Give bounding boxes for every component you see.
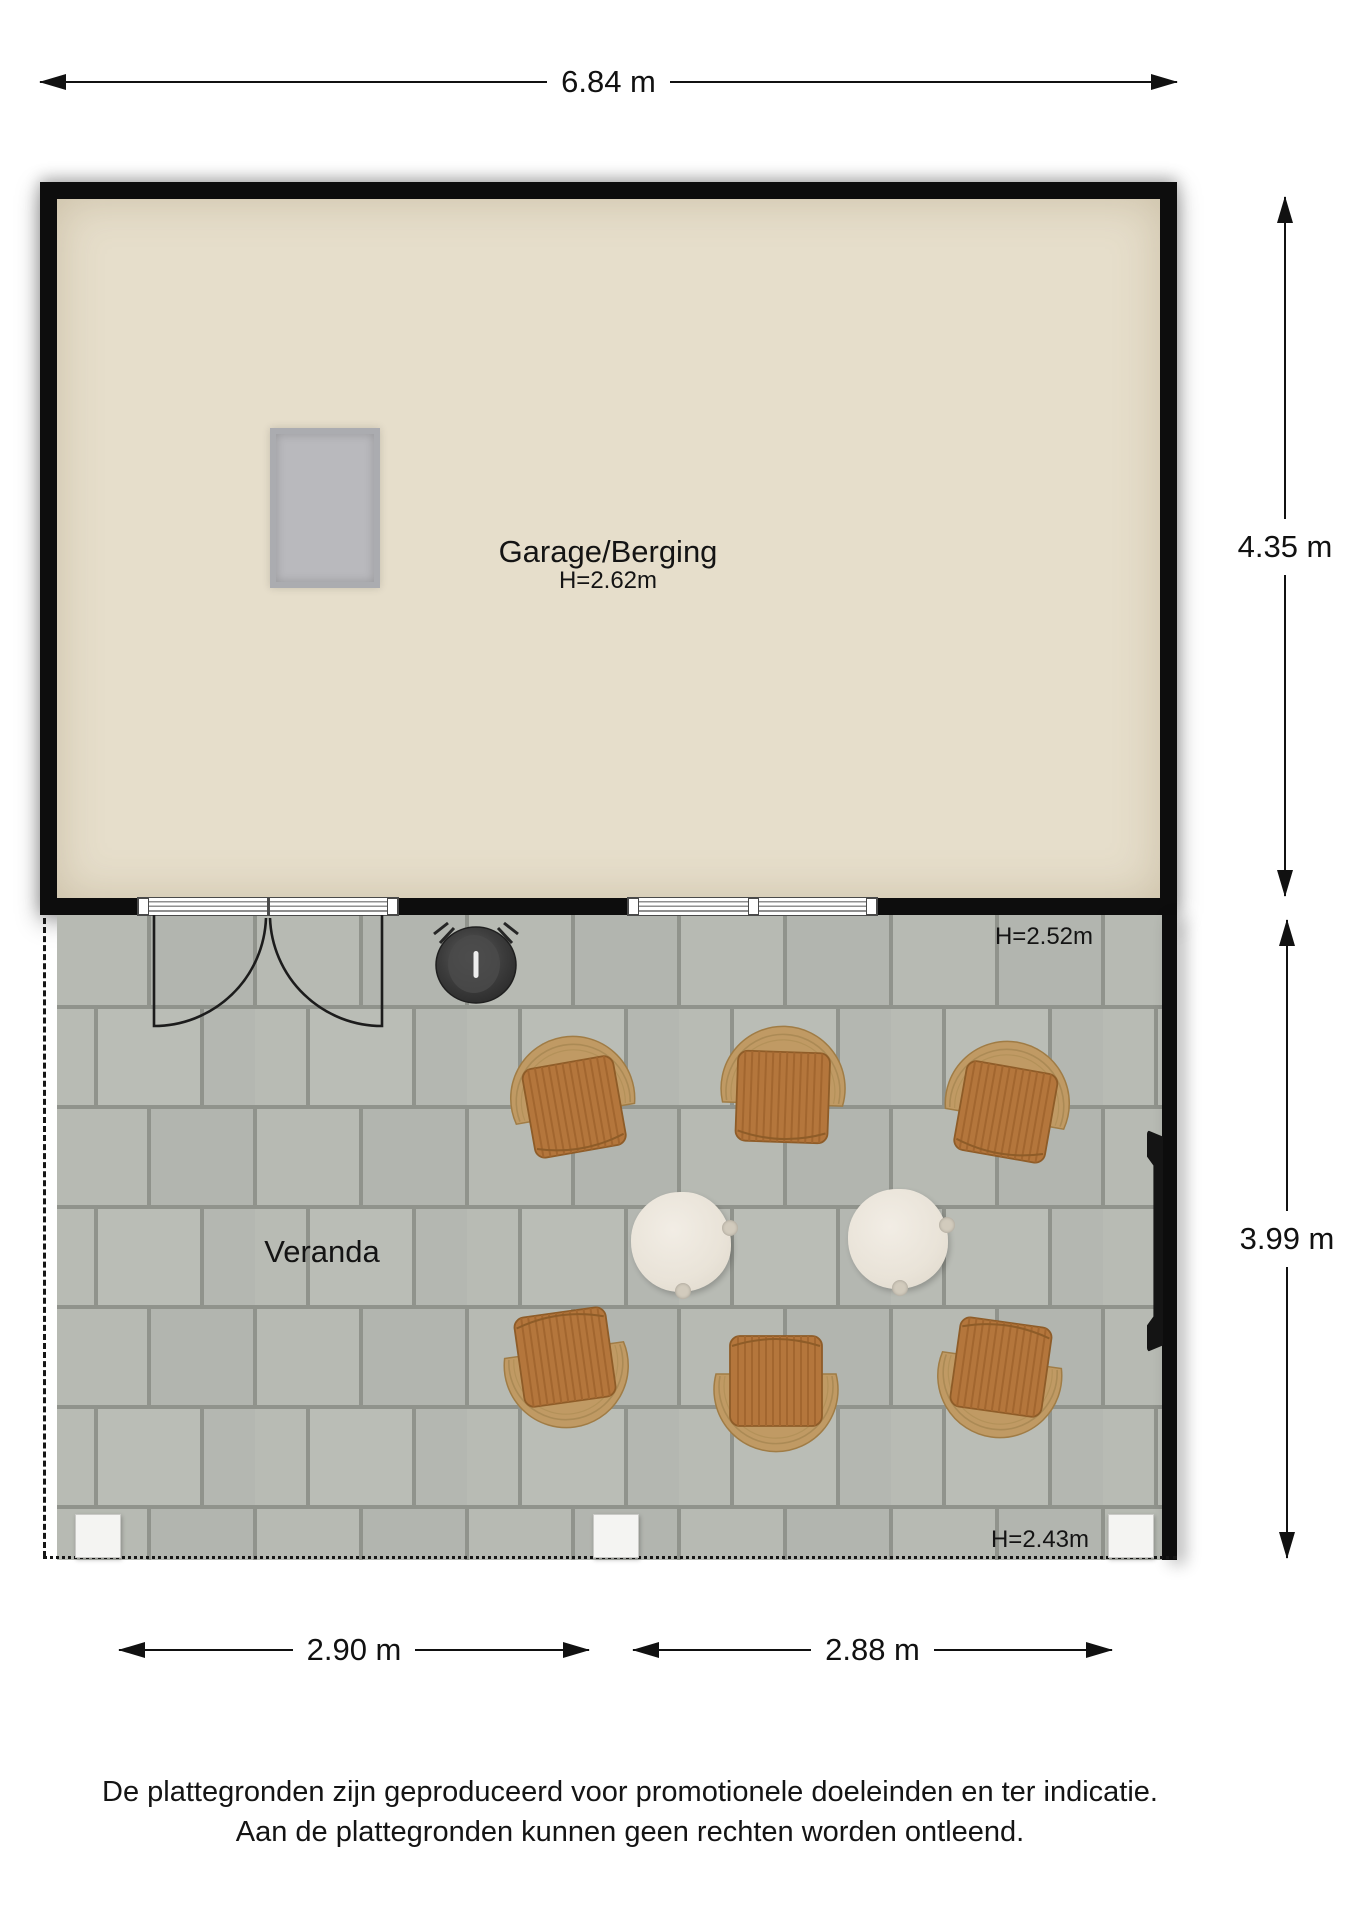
dimension-veranda-depth-label: 3.99 m [1240, 1211, 1335, 1267]
veranda-right-wall [1162, 915, 1177, 1560]
dimension-line [1286, 1267, 1288, 1558]
veranda-label: Veranda [264, 1234, 380, 1270]
veranda-height-top-label: H=2.52m [995, 923, 1093, 951]
bbq-grill-icon [432, 921, 520, 1005]
dimension-line [633, 1649, 811, 1651]
wicker-chair [921, 1295, 1079, 1453]
footer-disclaimer: De plattegronden zijn geproduceerd voor … [10, 1772, 1250, 1852]
side-table [631, 1192, 731, 1292]
support-post [593, 1514, 639, 1558]
dimension-line [1284, 575, 1286, 897]
support-post [1108, 1514, 1154, 1558]
garage-ceiling-height-label: H=2.62m [559, 567, 657, 595]
dimension-garage-depth-label: 4.35 m [1238, 519, 1333, 575]
dimension-line [670, 81, 1177, 83]
side-table [848, 1189, 948, 1289]
dimension-veranda-depth: 3.99 m [1227, 920, 1347, 1558]
window-opening [627, 897, 878, 916]
dimension-line [1286, 920, 1288, 1211]
floorplan-canvas: 6.84 m Garage/Berging H=2.62m [0, 0, 1358, 1920]
veranda-open-side-dashed-line [43, 918, 46, 1557]
door-post [387, 898, 398, 915]
dimension-veranda-right-width: 2.88 m [633, 1635, 1112, 1665]
dimension-veranda-left-width-label: 2.90 m [293, 1632, 416, 1668]
garage-label: Garage/Berging [499, 534, 718, 570]
dimension-total-width-label: 6.84 m [547, 64, 670, 100]
dimension-line [1284, 197, 1286, 519]
wicker-chair [711, 1018, 856, 1163]
wicker-chair [926, 1024, 1088, 1186]
dimension-line [934, 1649, 1112, 1651]
dimension-line [40, 81, 547, 83]
footer-disclaimer-line2: Aan de plattegronden kunnen geen rechten… [10, 1812, 1250, 1852]
dimension-garage-depth: 4.35 m [1225, 197, 1345, 896]
window-mullion [748, 898, 759, 915]
skylight-window [270, 428, 380, 588]
dimension-veranda-left-width: 2.90 m [119, 1635, 589, 1665]
dimension-line [415, 1649, 589, 1651]
double-door-opening [137, 897, 399, 916]
dimension-total-width: 6.84 m [40, 67, 1177, 97]
support-post [75, 1514, 121, 1558]
footer-disclaimer-line1: De plattegronden zijn geproduceerd voor … [10, 1772, 1250, 1812]
wicker-chair [706, 1318, 846, 1458]
window-post [628, 898, 639, 915]
wicker-chair [487, 1285, 645, 1443]
dimension-line [119, 1649, 293, 1651]
dimension-veranda-right-width-label: 2.88 m [811, 1632, 934, 1668]
wicker-chair [492, 1019, 654, 1181]
window-post [866, 898, 877, 915]
door-meeting-stile [267, 898, 270, 915]
veranda-height-bottom-label: H=2.43m [991, 1526, 1089, 1554]
door-post [138, 898, 149, 915]
door-swing-arcs-icon [137, 915, 399, 1040]
